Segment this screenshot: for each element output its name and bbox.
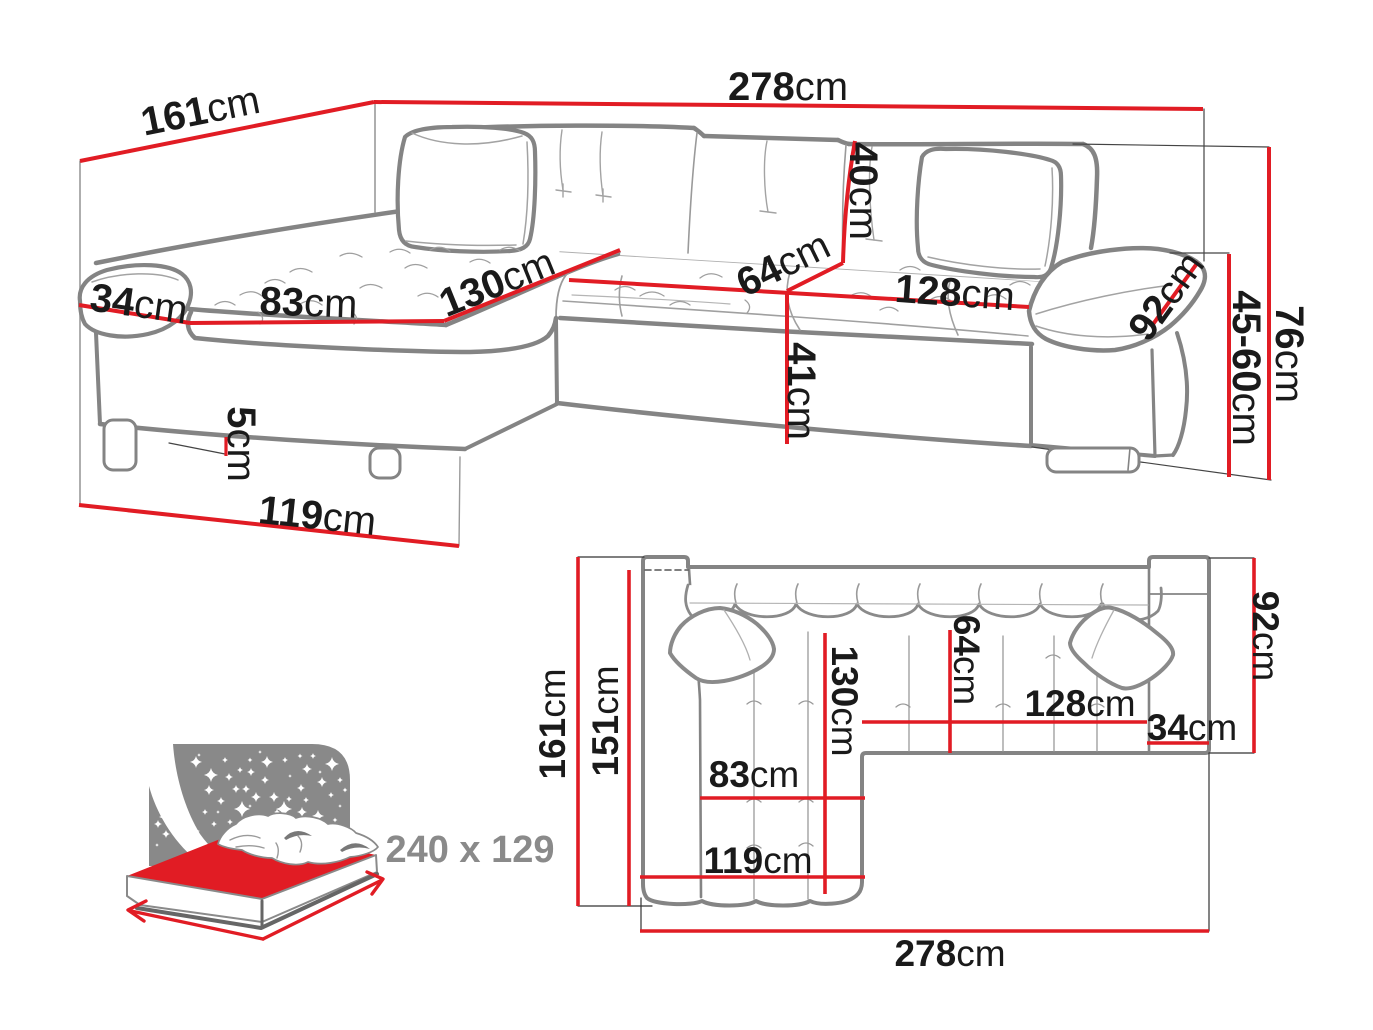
svg-text:83cm: 83cm [259,279,358,326]
svg-text:41cm: 41cm [779,342,823,440]
svg-text:161cm: 161cm [532,668,573,779]
svg-text:5cm: 5cm [219,406,263,482]
svg-text:278cm: 278cm [894,933,1005,974]
svg-text:240 x 129: 240 x 129 [385,829,554,871]
svg-text:151cm: 151cm [585,665,626,776]
svg-text:40cm: 40cm [841,142,885,240]
svg-text:83cm: 83cm [709,754,799,795]
svg-text:119cm: 119cm [703,840,812,881]
svg-text:45-60cm: 45-60cm [1224,290,1268,446]
svg-text:34cm: 34cm [1147,707,1237,748]
svg-text:128cm: 128cm [1024,683,1135,724]
svg-text:64cm: 64cm [946,615,987,705]
svg-text:128cm: 128cm [893,267,1016,319]
svg-text:278cm: 278cm [728,65,848,109]
svg-text:130cm: 130cm [824,645,865,756]
svg-text:76cm: 76cm [1267,305,1311,403]
svg-text:92cm: 92cm [1245,591,1286,681]
